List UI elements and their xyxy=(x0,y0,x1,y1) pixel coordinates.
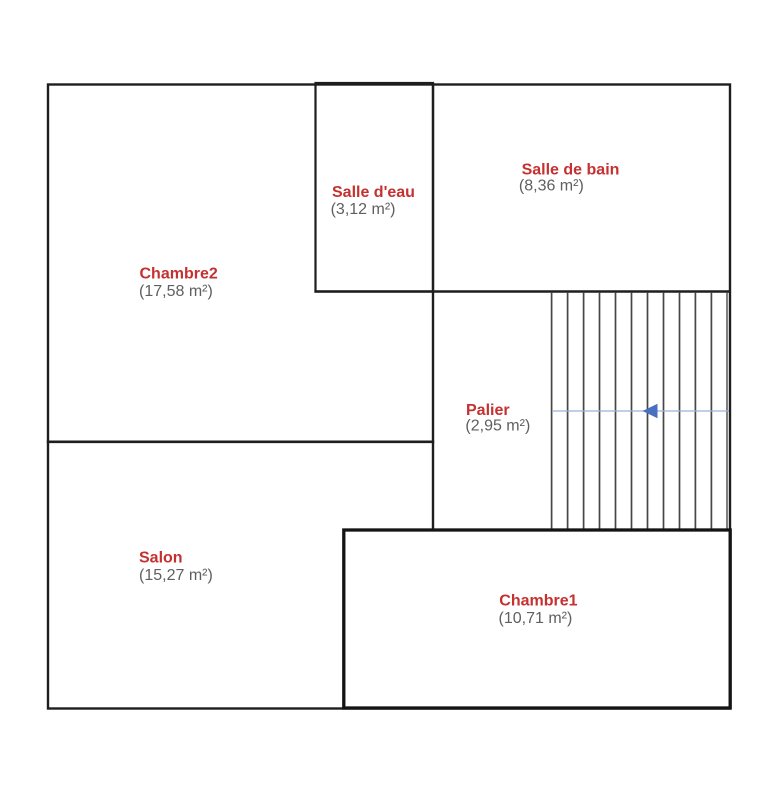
svg-text:Salon: Salon xyxy=(139,550,183,567)
svg-text:Palier: Palier xyxy=(466,402,510,419)
svg-text:Salle de bain: Salle de bain xyxy=(522,161,620,178)
svg-text:(17,58 m²): (17,58 m²) xyxy=(139,283,213,300)
svg-text:Salle d'eau: Salle d'eau xyxy=(332,184,415,201)
svg-text:Chambre1: Chambre1 xyxy=(499,592,577,609)
svg-text:(2,95 m²): (2,95 m²) xyxy=(465,417,530,434)
svg-text:(3,12 m²): (3,12 m²) xyxy=(331,201,396,218)
svg-text:(15,27 m²): (15,27 m²) xyxy=(139,567,213,584)
svg-text:(10,71 m²): (10,71 m²) xyxy=(499,610,573,627)
svg-text:Chambre2: Chambre2 xyxy=(140,266,218,283)
svg-text:(8,36 m²): (8,36 m²) xyxy=(519,178,584,195)
